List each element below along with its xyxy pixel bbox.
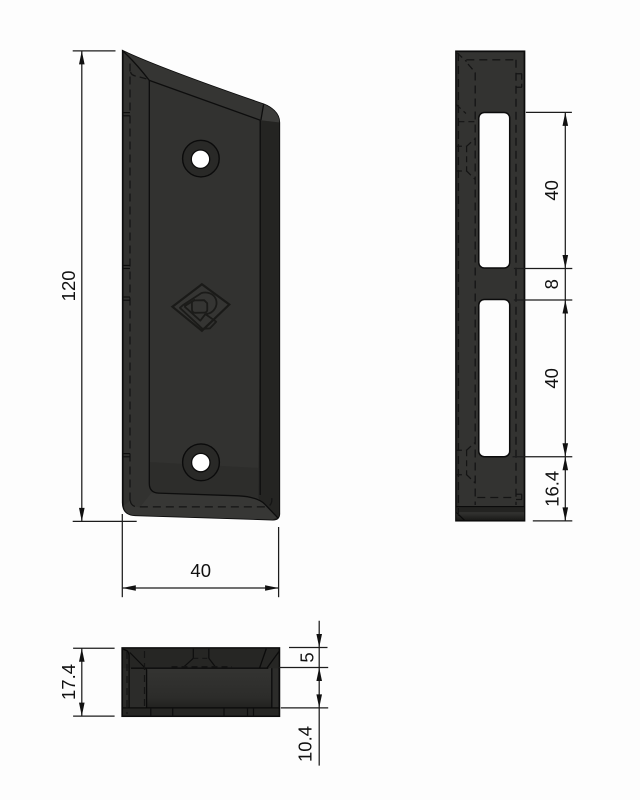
svg-text:40: 40 bbox=[190, 560, 211, 581]
svg-text:40: 40 bbox=[541, 180, 562, 201]
svg-text:10.4: 10.4 bbox=[295, 726, 316, 762]
svg-text:8: 8 bbox=[541, 279, 562, 289]
svg-text:5: 5 bbox=[296, 652, 317, 662]
svg-text:120: 120 bbox=[58, 270, 79, 301]
svg-text:17.4: 17.4 bbox=[58, 664, 79, 700]
svg-text:16.4: 16.4 bbox=[541, 471, 562, 507]
svg-text:40: 40 bbox=[541, 368, 562, 389]
